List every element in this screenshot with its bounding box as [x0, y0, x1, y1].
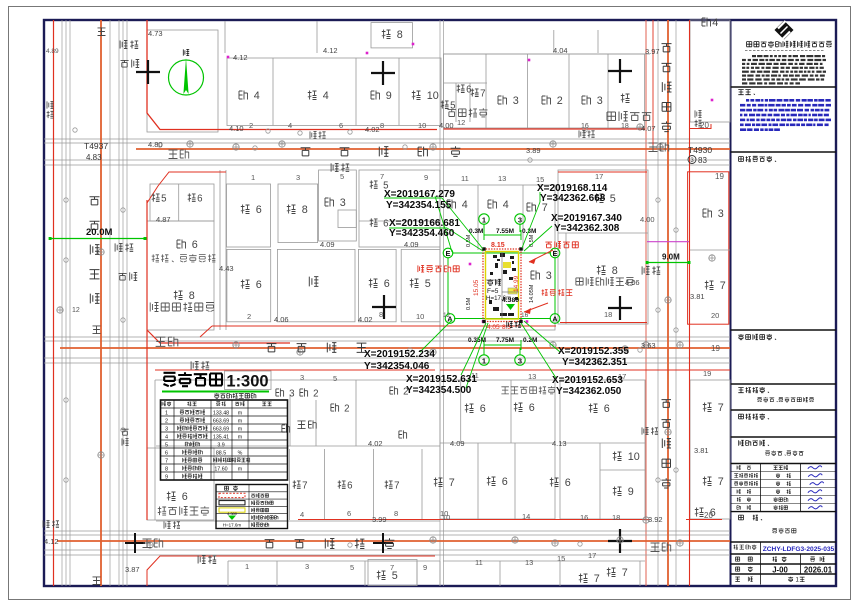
- svg-text:2: 2: [249, 121, 253, 130]
- svg-text:7: 7: [718, 402, 724, 414]
- svg-text:6: 6: [256, 279, 262, 291]
- svg-text:20: 20: [711, 311, 719, 320]
- svg-text:H=17.6m: H=17.6m: [223, 523, 242, 528]
- svg-text:10: 10: [418, 121, 426, 130]
- svg-text:5: 5: [165, 442, 168, 448]
- svg-text:X=2019167.279: X=2019167.279: [384, 189, 455, 200]
- svg-text:Y=342362.050: Y=342362.050: [556, 386, 622, 397]
- svg-text:6: 6: [466, 84, 471, 95]
- svg-text:3: 3: [296, 173, 300, 182]
- svg-text:20: 20: [700, 121, 709, 130]
- svg-text:4: 4: [288, 121, 292, 130]
- svg-text:4.10: 4.10: [229, 124, 244, 133]
- svg-text:7: 7: [302, 480, 307, 491]
- svg-text:8: 8: [394, 509, 398, 518]
- svg-text:m: m: [238, 426, 243, 432]
- svg-text:1:300: 1:300: [226, 373, 268, 391]
- svg-text:J-00: J-00: [772, 565, 788, 574]
- svg-text:11: 11: [461, 174, 469, 183]
- svg-text:6: 6: [529, 402, 535, 414]
- svg-text:12: 12: [72, 307, 80, 314]
- svg-text:5: 5: [425, 278, 431, 290]
- svg-text:6: 6: [480, 403, 486, 415]
- svg-text:133.48: 133.48: [213, 410, 229, 416]
- svg-text:6: 6: [384, 278, 390, 290]
- svg-text:4.12: 4.12: [44, 537, 59, 546]
- svg-text:6: 6: [347, 480, 352, 491]
- svg-text:16: 16: [581, 123, 589, 130]
- svg-text:3: 3: [300, 373, 304, 382]
- svg-text:13: 13: [525, 558, 533, 567]
- svg-text:7: 7: [720, 280, 726, 292]
- svg-text:17.60: 17.60: [214, 466, 227, 472]
- svg-text:12: 12: [457, 118, 465, 127]
- svg-text:7.75M: 7.75M: [496, 337, 514, 344]
- svg-text:4.09: 4.09: [320, 240, 335, 249]
- svg-text:5: 5: [340, 172, 344, 181]
- svg-text:4.07: 4.07: [641, 124, 656, 133]
- svg-text:3: 3: [518, 357, 522, 366]
- svg-text:1: 1: [245, 562, 249, 571]
- svg-text:18: 18: [612, 513, 620, 522]
- svg-text:8: 8: [379, 310, 383, 319]
- svg-text:7: 7: [594, 573, 600, 585]
- svg-text:9: 9: [424, 173, 428, 182]
- svg-text:4: 4: [462, 199, 468, 211]
- svg-text:4.02: 4.02: [358, 315, 373, 324]
- svg-text:4.00: 4.00: [439, 121, 454, 130]
- svg-text:4: 4: [254, 90, 260, 102]
- svg-text:4.05: 4.05: [487, 324, 500, 331]
- svg-text:3.81: 3.81: [690, 292, 705, 301]
- svg-text:10: 10: [442, 513, 450, 522]
- svg-text:8: 8: [302, 204, 308, 216]
- svg-text:663.69: 663.69: [213, 426, 229, 432]
- svg-text:10: 10: [628, 451, 640, 463]
- svg-text:18: 18: [621, 123, 629, 130]
- svg-text:6: 6: [565, 477, 571, 489]
- svg-text:7: 7: [165, 458, 168, 464]
- svg-text:12: 12: [443, 312, 451, 319]
- svg-text:14.99: 14.99: [513, 275, 520, 292]
- svg-text:3.87: 3.87: [125, 565, 140, 574]
- svg-text:3.92: 3.92: [648, 515, 663, 524]
- svg-text:m: m: [238, 418, 243, 424]
- svg-text:9: 9: [628, 486, 634, 498]
- svg-text:X=2019152.631: X=2019152.631: [406, 374, 477, 385]
- svg-text:7: 7: [718, 476, 724, 488]
- svg-text:9: 9: [423, 563, 427, 572]
- svg-text:4: 4: [300, 510, 304, 519]
- svg-text:4: 4: [503, 199, 509, 211]
- svg-text:ZCHY-LDFG3-2025-035: ZCHY-LDFG3-2025-035: [763, 546, 835, 553]
- svg-text:6: 6: [339, 121, 343, 130]
- svg-text:7: 7: [390, 563, 394, 572]
- svg-text:Y=342354.500: Y=342354.500: [406, 385, 472, 396]
- svg-text:%: %: [238, 450, 243, 456]
- svg-text:3: 3: [289, 388, 294, 399]
- svg-text:Y=342362.308: Y=342362.308: [554, 223, 620, 234]
- svg-text:3: 3: [546, 270, 552, 282]
- svg-text:m: m: [238, 434, 243, 440]
- svg-text:4: 4: [712, 17, 718, 29]
- svg-text:15: 15: [557, 554, 565, 563]
- svg-text:7: 7: [380, 172, 384, 181]
- svg-text:3.97: 3.97: [645, 47, 660, 56]
- svg-text:8.15: 8.15: [491, 242, 505, 249]
- svg-text:F=5: F=5: [487, 288, 499, 295]
- svg-text:T4930: T4930: [688, 145, 712, 155]
- svg-text:8: 8: [612, 265, 618, 277]
- svg-text:X=2019152.653: X=2019152.653: [552, 375, 623, 386]
- svg-text:2: 2: [247, 312, 251, 321]
- svg-text:20.0M: 20.0M: [86, 227, 112, 238]
- svg-text:6: 6: [165, 450, 168, 456]
- svg-text:4.00: 4.00: [640, 215, 655, 224]
- svg-text:13: 13: [528, 372, 536, 381]
- svg-text:7: 7: [480, 88, 485, 99]
- svg-text:7: 7: [622, 567, 628, 579]
- svg-text:18: 18: [604, 310, 612, 319]
- svg-text:5: 5: [610, 193, 616, 205]
- svg-text:14: 14: [522, 512, 530, 521]
- svg-text:19: 19: [711, 344, 720, 353]
- svg-text:7: 7: [394, 480, 399, 491]
- svg-text:2: 2: [313, 388, 318, 399]
- svg-text:6: 6: [604, 403, 610, 415]
- svg-text:5: 5: [392, 570, 398, 582]
- svg-text:7: 7: [542, 202, 548, 214]
- svg-text:9.0M: 9.0M: [662, 253, 680, 262]
- svg-text:3: 3: [518, 216, 522, 225]
- svg-text:6: 6: [192, 239, 198, 251]
- svg-text:2026.01: 2026.01: [804, 565, 833, 574]
- svg-text:7: 7: [449, 477, 455, 489]
- svg-text:3.81: 3.81: [694, 446, 709, 455]
- svg-text:Y=342362.351: Y=342362.351: [562, 357, 628, 368]
- svg-text:Y=342362.668: Y=342362.668: [540, 193, 606, 204]
- svg-text:X=2019152.234: X=2019152.234: [364, 349, 435, 360]
- svg-text:9: 9: [165, 474, 168, 480]
- svg-text:9: 9: [386, 90, 392, 102]
- svg-text:m: m: [238, 410, 243, 416]
- svg-text:663.69: 663.69: [213, 418, 229, 424]
- svg-text:1: 1: [251, 173, 255, 182]
- svg-text:5: 5: [350, 563, 354, 572]
- svg-text:4.380: 4.380: [502, 297, 519, 304]
- svg-text:14.05M: 14.05M: [529, 284, 535, 303]
- svg-text:8: 8: [165, 466, 168, 472]
- svg-text:0.5M: 0.5M: [529, 234, 535, 247]
- svg-text:11: 11: [475, 558, 483, 567]
- svg-text:6: 6: [197, 193, 202, 204]
- svg-text:1: 1: [165, 410, 168, 416]
- svg-text:4: 4: [323, 90, 329, 102]
- svg-text:m: m: [238, 466, 243, 472]
- svg-text:1: 1: [482, 216, 486, 225]
- svg-text:4.09: 4.09: [404, 240, 419, 249]
- svg-text:3: 3: [718, 208, 724, 220]
- svg-text:4.04: 4.04: [553, 46, 568, 55]
- svg-text:4.43: 4.43: [219, 264, 234, 273]
- svg-text:4.06: 4.06: [274, 315, 289, 324]
- svg-text:6: 6: [502, 476, 508, 488]
- svg-text:6: 6: [383, 218, 388, 229]
- svg-text:3.9: 3.9: [217, 442, 224, 448]
- svg-text:83: 83: [698, 156, 707, 165]
- svg-text:3.99: 3.99: [372, 515, 387, 524]
- svg-text:20: 20: [704, 511, 713, 520]
- svg-text:3.89: 3.89: [526, 146, 541, 155]
- svg-text:3: 3: [597, 95, 603, 107]
- svg-text:17: 17: [595, 172, 603, 181]
- svg-text:4.87: 4.87: [156, 215, 171, 224]
- svg-text:13: 13: [498, 174, 506, 183]
- svg-text:4.89: 4.89: [46, 48, 59, 55]
- svg-text:3: 3: [165, 426, 168, 432]
- svg-text:4.12: 4.12: [233, 53, 248, 62]
- svg-text:4.02: 4.02: [365, 125, 380, 134]
- svg-text:4.80: 4.80: [148, 140, 163, 149]
- svg-text:2: 2: [344, 403, 349, 414]
- svg-text:3: 3: [305, 562, 309, 571]
- svg-text:7.55M: 7.55M: [496, 228, 514, 235]
- svg-text:3.63: 3.63: [641, 341, 656, 350]
- svg-text:8: 8: [397, 29, 403, 41]
- svg-text:Y=342354.155: Y=342354.155: [386, 200, 452, 211]
- svg-text:E: E: [445, 249, 450, 258]
- svg-text:3: 3: [340, 197, 346, 209]
- svg-text:4.83: 4.83: [86, 153, 102, 162]
- svg-text:6: 6: [347, 509, 351, 518]
- svg-text:8: 8: [189, 290, 195, 302]
- svg-text:4: 4: [165, 434, 168, 440]
- svg-text:1: 1: [482, 357, 486, 366]
- svg-text:E: E: [552, 249, 557, 258]
- svg-text:15.05: 15.05: [473, 279, 480, 296]
- svg-text:0.5M: 0.5M: [466, 297, 472, 310]
- svg-text:4.02: 4.02: [368, 439, 383, 448]
- svg-text:19: 19: [715, 172, 724, 181]
- svg-text:16: 16: [580, 513, 588, 522]
- svg-text:19: 19: [703, 369, 711, 378]
- svg-text:5: 5: [161, 193, 166, 204]
- svg-text:X=2019152.355: X=2019152.355: [558, 346, 629, 357]
- svg-text:4.380: 4.380: [227, 511, 238, 516]
- svg-text:6: 6: [256, 204, 262, 216]
- svg-text:4.73: 4.73: [148, 29, 163, 38]
- svg-text:4.09: 4.09: [450, 439, 465, 448]
- svg-text:10: 10: [416, 312, 424, 321]
- svg-text:6: 6: [182, 491, 188, 503]
- svg-text:A: A: [552, 315, 558, 324]
- svg-text:Y=342354.460: Y=342354.460: [389, 228, 455, 239]
- svg-text:Y=342354.046: Y=342354.046: [364, 361, 430, 372]
- svg-text:135.41: 135.41: [213, 434, 229, 440]
- svg-text:T4937: T4937: [84, 141, 108, 151]
- svg-text:8: 8: [380, 121, 384, 130]
- svg-text:17: 17: [588, 551, 596, 560]
- svg-text:88.5: 88.5: [216, 450, 226, 456]
- svg-text:2: 2: [165, 418, 168, 424]
- svg-text:4.12: 4.12: [323, 46, 338, 55]
- svg-text:5: 5: [333, 374, 337, 383]
- svg-text:10: 10: [427, 90, 439, 102]
- svg-text:3: 3: [513, 95, 519, 107]
- svg-text:4.13: 4.13: [552, 439, 567, 448]
- svg-text:2: 2: [557, 95, 563, 107]
- svg-text:4.06: 4.06: [625, 278, 640, 287]
